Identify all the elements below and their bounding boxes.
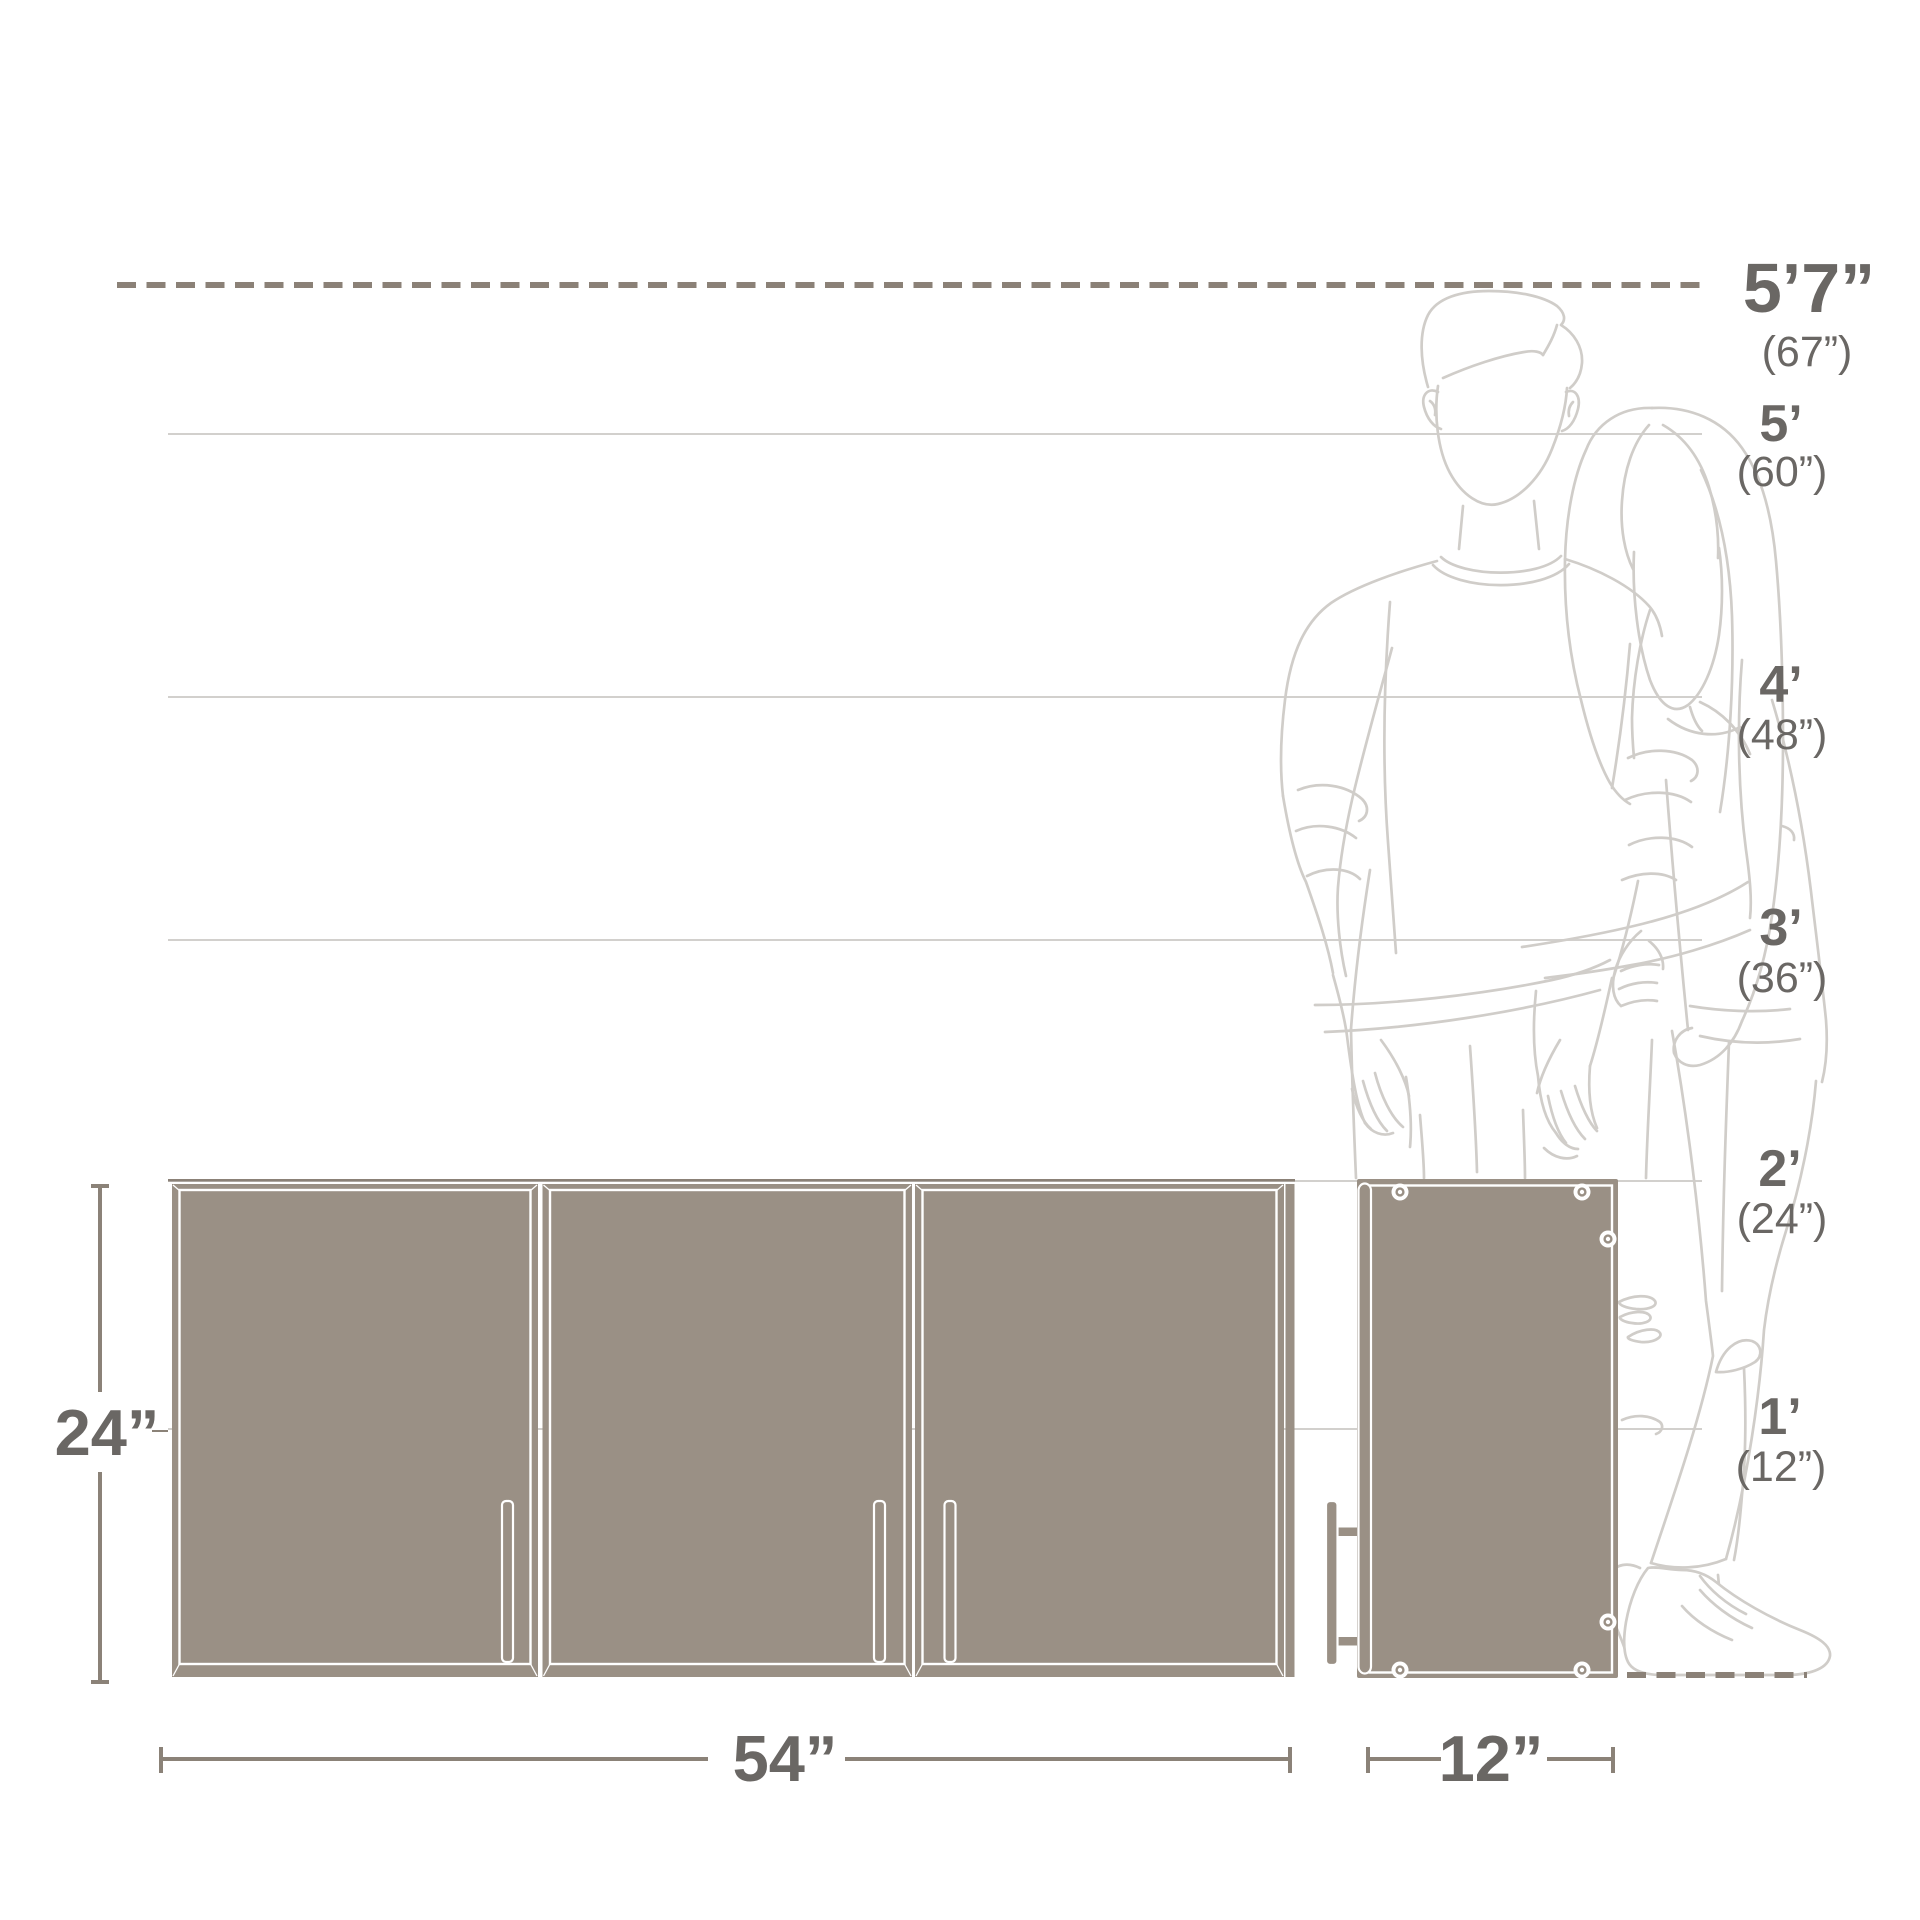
svg-text:(24”): (24”): [1737, 1195, 1828, 1243]
svg-text:(67”): (67”): [1762, 328, 1853, 376]
svg-text:54”: 54”: [733, 1722, 838, 1795]
svg-text:5’: 5’: [1759, 395, 1802, 453]
svg-text:(36”): (36”): [1737, 954, 1828, 1002]
svg-text:1’: 1’: [1758, 1388, 1801, 1446]
svg-text:5’7”: 5’7”: [1743, 249, 1875, 327]
svg-text:12”: 12”: [1439, 1722, 1544, 1795]
svg-text:(48”): (48”): [1737, 711, 1828, 759]
svg-text:2’: 2’: [1758, 1140, 1801, 1198]
svg-text:24”: 24”: [55, 1396, 160, 1469]
svg-text:3’: 3’: [1759, 899, 1802, 957]
svg-text:(12”): (12”): [1736, 1443, 1827, 1491]
svg-text:(60”): (60”): [1737, 448, 1828, 496]
svg-text:4’: 4’: [1759, 656, 1802, 714]
